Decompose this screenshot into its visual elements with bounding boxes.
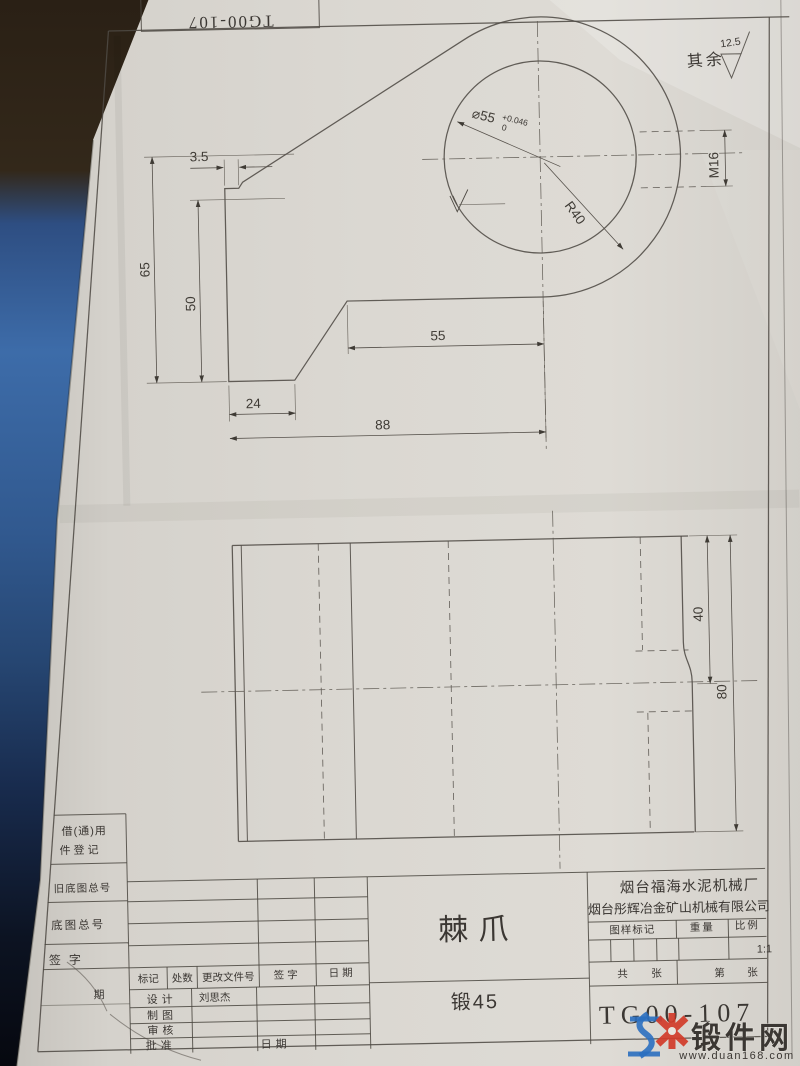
sheet-no-label: 第 bbox=[714, 966, 725, 979]
watermark-url: www.duan168.com bbox=[678, 1050, 794, 1062]
sheet-unit2-label: 张 bbox=[747, 967, 758, 979]
row-design-label: 设计 bbox=[147, 993, 177, 1007]
dim-width-88-label: 88 bbox=[375, 417, 390, 432]
dim-height-50-label: 50 bbox=[183, 296, 198, 311]
dim-width-24-label: 24 bbox=[246, 396, 262, 411]
dim-width-55-label: 55 bbox=[430, 328, 445, 343]
base-drawing-no-label: 底图总号 bbox=[51, 917, 105, 932]
reuse-register-label-1: 借(通)用 bbox=[61, 824, 107, 838]
old-base-drawing-no-label: 旧底图总号 bbox=[53, 881, 111, 895]
rev-count-header: 处数 bbox=[172, 971, 194, 984]
sheets-unit-label: 张 bbox=[651, 968, 662, 980]
col-mark-header: 图样标记 bbox=[609, 923, 655, 937]
col-weight-header: 重量 bbox=[690, 920, 715, 934]
sheets-total-label: 共 bbox=[617, 968, 628, 980]
corner-drawing-number: TG00-107 bbox=[187, 12, 274, 33]
photo-of-engineering-drawing: TG00-107 其余 12.5 M16 bbox=[0, 0, 800, 1066]
rev-date-header: 日期 bbox=[329, 967, 356, 980]
designer-name: 刘思杰 bbox=[199, 992, 231, 1005]
scale-value: 1:1 bbox=[757, 943, 773, 955]
dim-side-80-label: 80 bbox=[714, 684, 729, 699]
row-draw-label: 制图 bbox=[147, 1009, 177, 1023]
part-name: 棘爪 bbox=[438, 913, 519, 948]
dim-height-65-label: 65 bbox=[137, 262, 152, 277]
rev-mark-header: 标记 bbox=[138, 973, 160, 985]
material-spec: 锻45 bbox=[450, 990, 499, 1014]
drawing-canvas: TG00-107 其余 12.5 M16 bbox=[0, 0, 800, 1066]
dim-side-40-label: 40 bbox=[691, 607, 706, 622]
company-name-1: 烟台福海水泥机械厂 bbox=[620, 877, 760, 897]
approve-date-label: 日期 bbox=[261, 1037, 291, 1051]
rev-sign-header: 签字 bbox=[274, 968, 301, 982]
reuse-register-label-2: 件登记 bbox=[59, 842, 101, 857]
row-check-label: 审核 bbox=[147, 1023, 177, 1038]
row-approve-label: 批准 bbox=[146, 1038, 176, 1053]
col-scale-header: 比例 bbox=[735, 919, 760, 933]
dim-thread-label: M16 bbox=[706, 152, 722, 179]
date-label-ghost: 期 bbox=[93, 988, 104, 1001]
rev-doc-header: 更改文件号 bbox=[202, 970, 255, 984]
dim-step-label: 3.5 bbox=[190, 149, 209, 164]
signature-label: 签字 bbox=[49, 952, 89, 968]
